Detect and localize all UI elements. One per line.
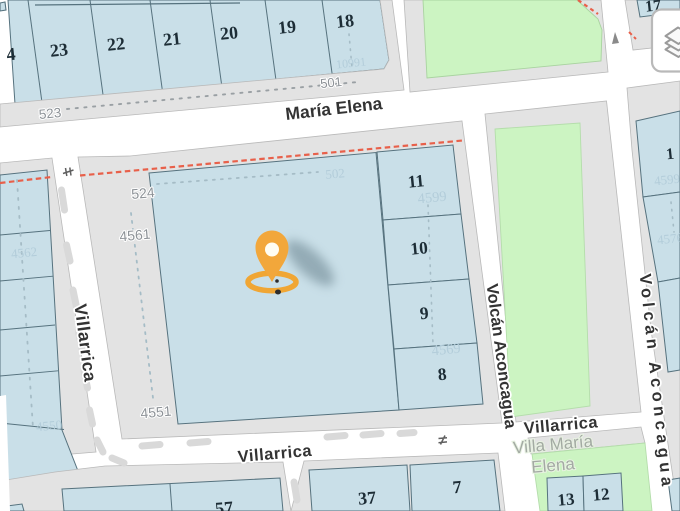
- svg-text:4599: 4599: [417, 189, 447, 208]
- svg-text:4599: 4599: [653, 171, 680, 189]
- svg-text:4562: 4562: [10, 244, 37, 261]
- svg-text:22: 22: [106, 33, 126, 55]
- svg-text:20: 20: [219, 22, 239, 44]
- svg-text:523: 523: [38, 105, 62, 122]
- svg-text:19: 19: [277, 16, 297, 38]
- svg-text:18: 18: [335, 10, 355, 32]
- svg-text:23: 23: [49, 39, 69, 61]
- svg-text:57: 57: [214, 497, 234, 511]
- svg-text:524: 524: [131, 184, 156, 202]
- svg-text:11: 11: [407, 170, 425, 191]
- svg-text:4561: 4561: [119, 226, 152, 245]
- svg-text:13: 13: [557, 489, 576, 509]
- svg-text:4576: 4576: [656, 230, 680, 248]
- svg-text:4569: 4569: [431, 341, 461, 360]
- svg-text:7: 7: [452, 477, 463, 498]
- svg-text:10: 10: [409, 237, 429, 259]
- svg-text:37: 37: [357, 487, 377, 508]
- svg-text:502: 502: [325, 165, 346, 182]
- svg-text:12: 12: [592, 484, 611, 504]
- svg-text:501: 501: [319, 74, 342, 91]
- svg-text:4551: 4551: [140, 403, 173, 422]
- svg-text:21: 21: [162, 28, 182, 50]
- svg-text:4550: 4550: [35, 417, 62, 434]
- svg-text:Elena: Elena: [531, 454, 577, 477]
